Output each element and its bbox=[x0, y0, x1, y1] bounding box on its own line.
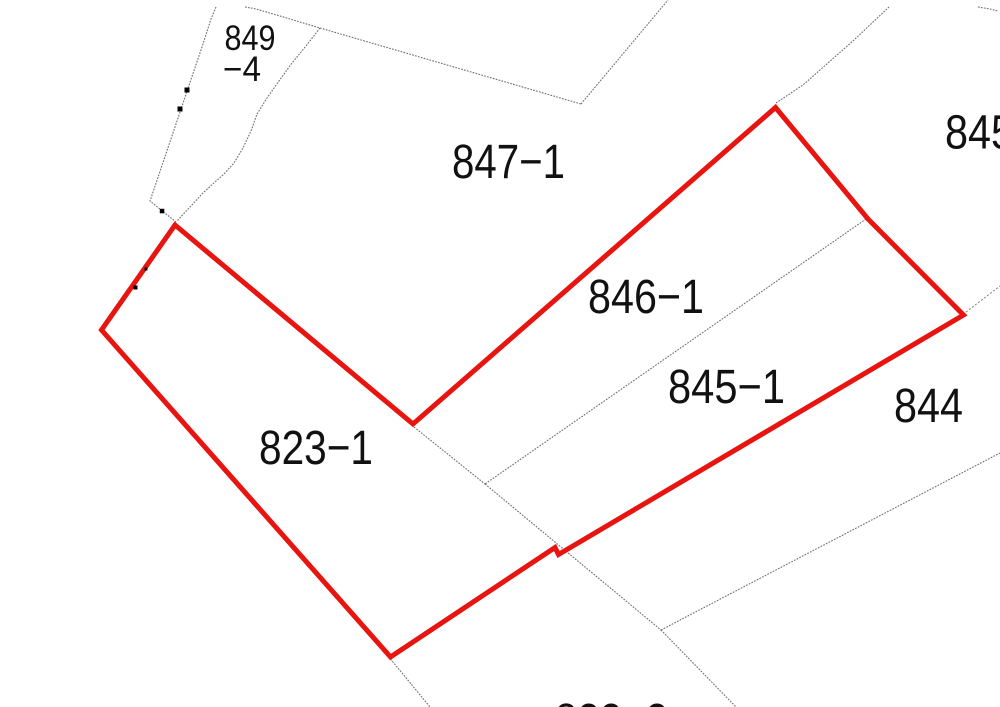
svg-text:823−1: 823−1 bbox=[259, 421, 373, 475]
svg-text:847−1: 847−1 bbox=[452, 135, 565, 189]
svg-text:844: 844 bbox=[894, 379, 963, 433]
svg-text:−4: −4 bbox=[223, 50, 261, 89]
svg-text:822−2: 822−2 bbox=[555, 694, 668, 707]
svg-text:846−1: 846−1 bbox=[588, 270, 704, 324]
svg-text:845: 845 bbox=[945, 106, 1000, 160]
svg-text:845−1: 845−1 bbox=[668, 360, 785, 414]
